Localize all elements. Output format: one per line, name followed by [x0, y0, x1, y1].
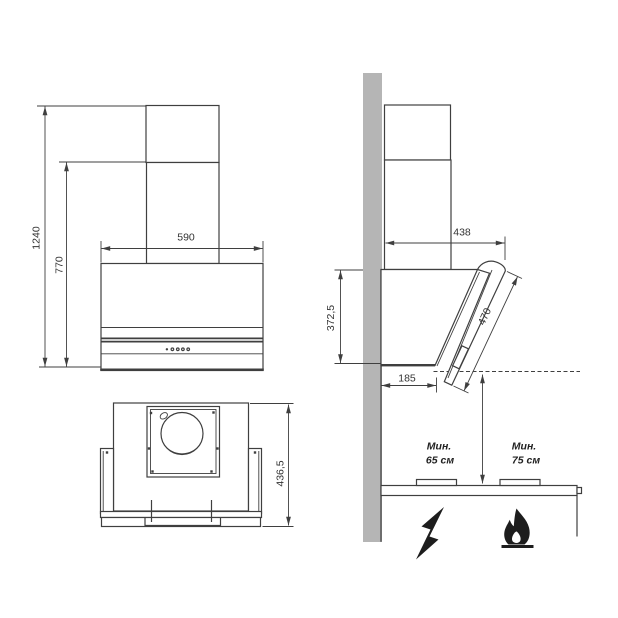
dim-label-372-5: 372,5: [325, 305, 337, 331]
control-button-center: [188, 349, 189, 350]
dim-label-438: 438: [453, 227, 471, 239]
dim-label-436-5: 436,5: [275, 460, 287, 486]
screw: [150, 412, 152, 414]
screw: [254, 451, 256, 453]
cooker-hood-dimension-drawing: 1240 770 590: [0, 0, 618, 618]
top-front-strip: [101, 512, 262, 518]
control-button-center: [177, 349, 178, 350]
top-view: 436,5: [101, 403, 294, 527]
lightning-icon: [416, 507, 444, 560]
front-chimney-upper: [146, 106, 219, 163]
front-hood-body: [101, 264, 263, 371]
gas-min-label-line2: 75 см: [512, 455, 540, 467]
gas-min-label-line1: Мин.: [512, 441, 537, 453]
screw: [210, 470, 212, 472]
flame-icon: [502, 509, 534, 549]
screw: [106, 451, 108, 453]
screw: [151, 470, 153, 472]
top-left-wing: [101, 449, 114, 514]
countertop-edge-tab: [577, 488, 582, 494]
screw: [148, 447, 150, 449]
hob-burner-left: [417, 480, 457, 486]
top-right-wing: [249, 449, 262, 514]
control-button-center: [182, 349, 183, 350]
screw: [216, 447, 218, 449]
flame-base-bar: [502, 545, 534, 548]
extension-line: [507, 272, 522, 279]
side-chimney-upper: [385, 105, 451, 160]
front-view: 1240 770 590: [31, 106, 264, 371]
dim-label-185: 185: [398, 373, 416, 385]
dim-label-590: 590: [177, 232, 195, 244]
side-chimney-lower: [385, 160, 452, 270]
dim-label-770: 770: [54, 256, 66, 274]
countertop: [381, 486, 577, 496]
hob-burner-right: [500, 480, 540, 486]
technical-drawing: 1240 770 590: [0, 0, 618, 618]
electric-min-label-line2: 65 см: [426, 455, 454, 467]
dim-label-1240: 1240: [31, 226, 43, 250]
wall: [363, 73, 382, 542]
side-view: 438 372,5 470 185: [325, 73, 580, 542]
control-button-center: [172, 349, 173, 350]
screw: [212, 411, 214, 413]
electric-min-label-line1: Мин.: [427, 441, 452, 453]
control-led: [166, 348, 168, 350]
installation-view: Мин. 65 см Мин. 75 см: [381, 375, 582, 560]
